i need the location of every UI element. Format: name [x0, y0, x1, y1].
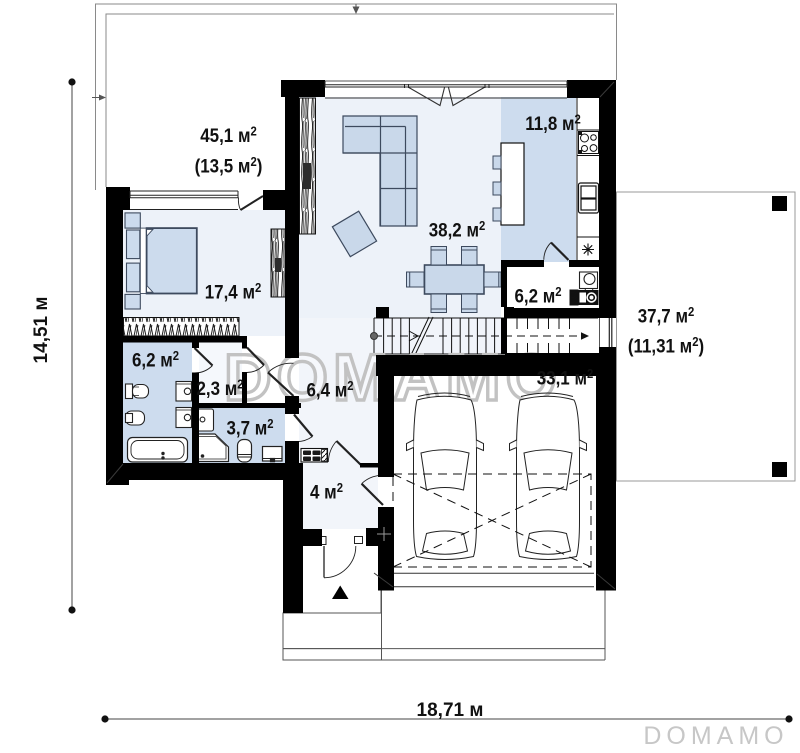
svg-text:6,2 м2: 6,2 м2	[514, 284, 561, 307]
svg-text:6,4 м2: 6,4 м2	[306, 378, 353, 401]
svg-text:33,1 м2: 33,1 м2	[537, 366, 594, 389]
svg-text:37,7 м2: 37,7 м2	[638, 304, 695, 327]
svg-text:38,2 м2: 38,2 м2	[429, 218, 486, 241]
svg-text:3,7 м2: 3,7 м2	[226, 416, 273, 439]
svg-text:2,3 м2: 2,3 м2	[196, 377, 243, 400]
svg-text:11,8 м2: 11,8 м2	[525, 112, 581, 135]
svg-text:DOMAMO: DOMAMO	[643, 722, 788, 750]
svg-text:45,1 м2: 45,1 м2	[200, 124, 257, 147]
svg-text:6,2 м2: 6,2 м2	[132, 348, 179, 371]
svg-text:14,51 м: 14,51 м	[31, 297, 52, 364]
svg-text:18,71 м: 18,71 м	[417, 700, 484, 721]
svg-text:17,4 м2: 17,4 м2	[205, 280, 262, 303]
